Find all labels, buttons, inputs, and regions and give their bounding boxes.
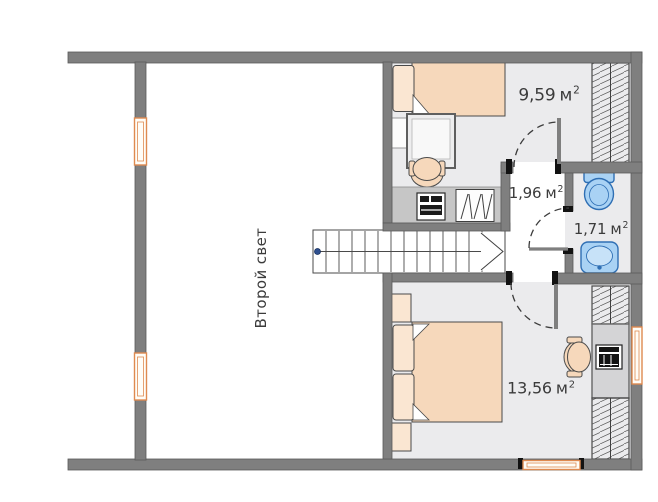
area-label-bedroom-bottom: 13,56м2 bbox=[507, 379, 575, 398]
window-right bbox=[632, 327, 642, 384]
window-left-2 bbox=[135, 353, 147, 400]
nightstand-bottom-bedroom-2 bbox=[391, 423, 411, 451]
floor-plan-drawing bbox=[0, 0, 658, 502]
wall-bedroom-top-left bbox=[383, 62, 392, 223]
hatched-cabinet bbox=[456, 190, 494, 222]
area-unit: м bbox=[559, 85, 572, 105]
area-value: 13,56 bbox=[507, 379, 552, 398]
area-unit: м bbox=[556, 379, 568, 398]
single-bed bbox=[393, 62, 505, 116]
nightstand-top-bedroom bbox=[391, 118, 408, 148]
wall-right bbox=[631, 52, 642, 470]
area-label-bedroom-top: 9,59м2 bbox=[518, 85, 579, 106]
wall-hallway-top-right bbox=[556, 162, 642, 173]
wall-below-stairs bbox=[383, 273, 513, 282]
area-sup: 2 bbox=[569, 379, 575, 390]
wall-above-stairs bbox=[383, 223, 510, 231]
label-second-light: Второй свет bbox=[252, 228, 270, 329]
pillow bbox=[393, 374, 414, 420]
wardrobe-top-right bbox=[592, 63, 629, 163]
window-left-1 bbox=[135, 118, 147, 165]
toilet bbox=[584, 171, 614, 210]
area-value: 9,59 bbox=[518, 85, 555, 105]
area-sup: 2 bbox=[558, 184, 564, 195]
window-bottom bbox=[523, 461, 580, 470]
area-label-hallway: 1,96м2 bbox=[509, 184, 563, 202]
stairs bbox=[313, 230, 505, 273]
washing-machine bbox=[417, 193, 445, 220]
walk-line-start-dot bbox=[315, 249, 321, 255]
nightstand-bottom-bedroom-1 bbox=[391, 294, 411, 322]
wall-top bbox=[68, 52, 642, 63]
pillow bbox=[393, 66, 414, 112]
area-value: 1,96 bbox=[509, 184, 542, 202]
floor-plan: 9,59м2 1,96м2 1,71м2 13,56м2 Второй свет bbox=[0, 0, 658, 502]
computer bbox=[596, 345, 622, 369]
wall-bedroom-bottom-left bbox=[383, 273, 392, 459]
area-unit: м bbox=[610, 220, 621, 238]
area-unit: м bbox=[545, 184, 556, 202]
wardrobe-bottom-right-2 bbox=[592, 398, 629, 459]
area-sup: 2 bbox=[573, 85, 580, 97]
wall-bathroom-left-upper bbox=[565, 173, 573, 211]
chair-top-bedroom bbox=[409, 158, 445, 188]
wardrobe-bottom-right-1 bbox=[592, 286, 629, 324]
wall-bathroom-bottom bbox=[553, 273, 642, 284]
area-sup: 2 bbox=[623, 220, 629, 231]
pillow bbox=[393, 325, 414, 371]
area-value: 1,71 bbox=[574, 220, 607, 238]
area-label-bathroom: 1,71м2 bbox=[574, 220, 628, 238]
sink bbox=[581, 242, 618, 273]
